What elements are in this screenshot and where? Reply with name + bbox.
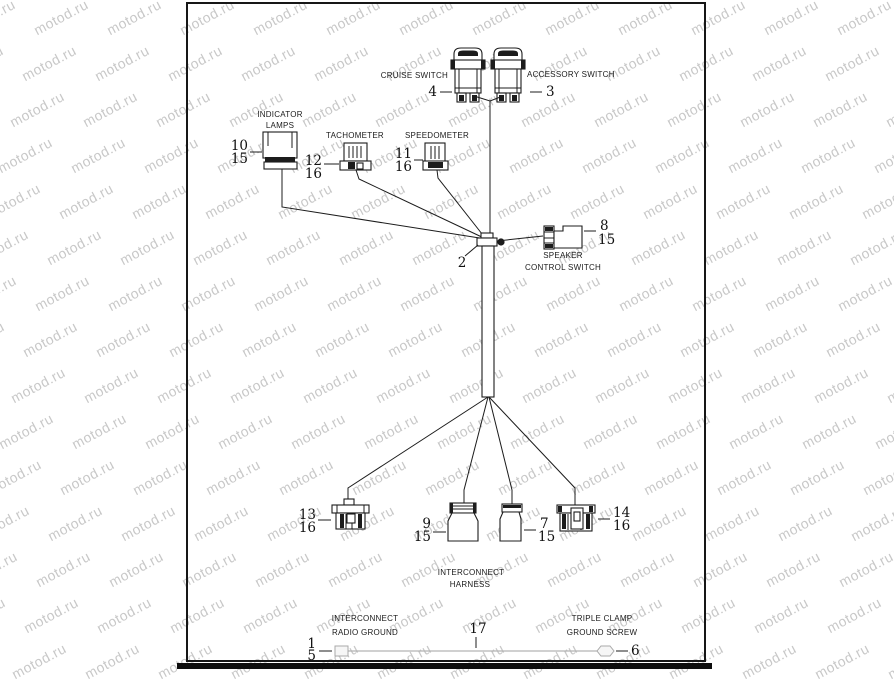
bolt-icon <box>497 238 504 245</box>
indicator-lamps-label-2: LAMPS <box>266 121 294 130</box>
ref-speedo-bottom: 16 <box>395 159 412 175</box>
ref-accessory: 3 <box>546 84 555 100</box>
speedometer-label: SPEEDOMETER <box>405 131 469 140</box>
radio-ground-label-1: INTERCONNECT <box>332 614 399 623</box>
triple-clamp-label-1: TRIPLE CLAMP <box>572 614 633 623</box>
ref-cruise: 4 <box>428 84 437 100</box>
speaker-switch-label-1: SPEAKER <box>543 251 583 260</box>
connector-9-graphic <box>448 503 478 541</box>
bottom-fanout-wires <box>348 397 575 505</box>
triple-clamp-label-2: GROUND SCREW <box>567 628 638 637</box>
ref-conn9-bottom: 15 <box>414 529 431 545</box>
ref2-leader <box>465 245 478 256</box>
ref-harness-wire: 17 <box>469 621 486 637</box>
speaker-control-switch-graphic <box>497 226 582 249</box>
tachometer-label: TACHOMETER <box>326 131 384 140</box>
tachometer-graphic <box>340 143 486 239</box>
ref-conn13-bottom: 16 <box>299 520 316 536</box>
ground-wire-graphic <box>335 637 614 656</box>
connector-14-graphic <box>557 505 595 531</box>
harness-tube <box>482 246 494 397</box>
cruise-switch-graphic <box>451 48 485 102</box>
wiring-diagram: CRUISE SWITCH ACCESSORY SWITCH INDICATOR… <box>0 0 894 671</box>
accessory-switch-label: ACCESSORY SWITCH <box>527 70 615 79</box>
ref-indicator-bottom: 15 <box>231 151 248 167</box>
ref-radio-ground-bottom: 5 <box>307 648 316 664</box>
connector-13-graphic <box>332 499 369 529</box>
radio-ground-label-2: RADIO GROUND <box>332 628 398 637</box>
ring-terminal-icon <box>335 646 348 656</box>
page-bottom-bar <box>177 663 712 669</box>
accessory-switch-graphic <box>491 48 525 102</box>
indicator-lamps-label-1: INDICATOR <box>257 110 303 119</box>
interconnect-harness-label-1: INTERCONNECT <box>438 568 505 577</box>
interconnect-harness-label-2: HARNESS <box>450 580 490 589</box>
ground-screw-icon <box>597 646 614 656</box>
cruise-switch-label: CRUISE SWITCH <box>381 71 448 80</box>
speaker-switch-label-2: CONTROL SWITCH <box>525 263 601 272</box>
ref-tach-bottom: 16 <box>305 166 322 182</box>
ref-conn7-bottom: 15 <box>538 529 555 545</box>
ref-conn14-bottom: 16 <box>613 518 630 534</box>
speedometer-wire <box>437 170 486 239</box>
ref-speaker-bottom: 15 <box>598 232 615 248</box>
connector-7-graphic <box>500 504 522 541</box>
ref-junction: 2 <box>458 255 467 271</box>
ref-ground-screw: 6 <box>631 643 640 659</box>
speaker-wire <box>497 236 543 241</box>
